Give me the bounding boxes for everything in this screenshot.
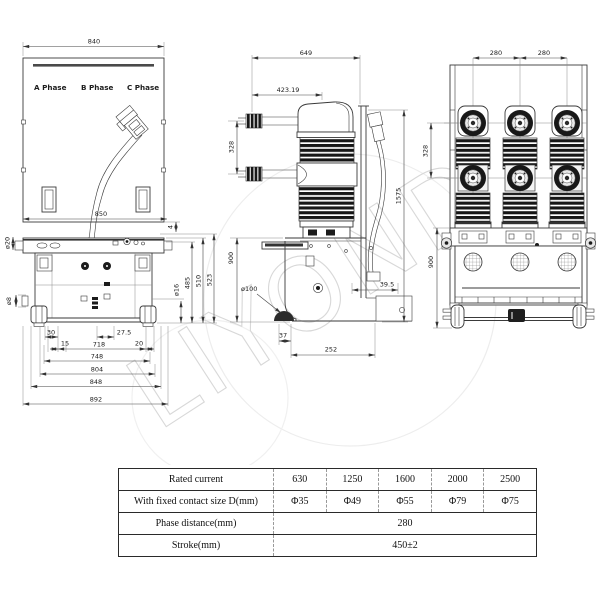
phase-b-label: B Phase xyxy=(81,83,113,92)
spec-row-phase-distance: Phase distance(mm) 280 xyxy=(119,513,537,535)
cell-value: 1250 xyxy=(326,469,379,491)
technical-drawing: LIYOND A Phase B Phase C Phase xyxy=(0,0,600,465)
phase-c-label: C Phase xyxy=(127,83,159,92)
dim-900-side: 900 xyxy=(227,252,235,264)
front-window-right xyxy=(136,187,150,212)
dim-649: 649 xyxy=(300,49,312,57)
front-mechanism-box xyxy=(22,253,156,326)
dim-840: 840 xyxy=(88,38,100,46)
cell-value: Φ35 xyxy=(274,491,327,513)
cell-value: 450±2 xyxy=(274,535,537,557)
spec-row-contact-size: With fixed contact size D(mm) Φ35 Φ49 Φ5… xyxy=(119,491,537,513)
dim-423: 423.19 xyxy=(277,86,300,94)
dim-o16: ø16 xyxy=(173,284,181,296)
cell-value: 2500 xyxy=(484,469,537,491)
cell-value: Φ49 xyxy=(326,491,379,513)
dim-252: 252 xyxy=(325,346,337,354)
cell-value: 280 xyxy=(274,513,537,535)
spec-table: Rated current 630 1250 1600 2000 2500 Wi… xyxy=(118,468,537,557)
drawing-sheet: LIYOND A Phase B Phase C Phase xyxy=(0,0,600,600)
rear-pole-b xyxy=(502,106,538,230)
row-label: With fixed contact size D(mm) xyxy=(119,491,274,513)
dim-485: 485 xyxy=(184,277,192,289)
phase-a-label: A Phase xyxy=(34,83,67,92)
dim-748: 748 xyxy=(91,353,103,361)
dim-27-5: 27.5 xyxy=(117,329,131,337)
rear-pole-a xyxy=(455,106,491,230)
dim-523: 523 xyxy=(206,274,214,286)
dim-510: 510 xyxy=(195,275,203,287)
dim-718: 718 xyxy=(93,341,105,349)
dim-o100: ø100 xyxy=(241,285,257,293)
dim-15: 15 xyxy=(61,340,69,348)
cell-value: Φ79 xyxy=(431,491,484,513)
dim-328-rear: 328 xyxy=(422,145,430,157)
rear-poles xyxy=(455,106,585,230)
dim-37: 37 xyxy=(279,332,287,340)
spec-row-rated-current: Rated current 630 1250 1600 2000 2500 xyxy=(119,469,537,491)
row-label: Stroke(mm) xyxy=(119,535,274,557)
side-terminals xyxy=(238,114,300,181)
rear-base xyxy=(441,228,595,328)
dim-848: 848 xyxy=(90,378,102,386)
row-label: Phase distance(mm) xyxy=(119,513,274,535)
dim-280-a: 280 xyxy=(490,49,502,57)
row-label: Rated current xyxy=(119,469,274,491)
dim-328-side: 328 xyxy=(228,141,236,153)
front-window-left xyxy=(42,187,56,212)
dim-30: 30 xyxy=(47,329,55,337)
dim-4: 4 xyxy=(167,225,175,229)
dim-1575: 1575 xyxy=(395,188,403,205)
dim-39-5: 39.5 xyxy=(380,281,394,289)
dim-892: 892 xyxy=(90,396,102,404)
cell-value: Φ75 xyxy=(484,491,537,513)
dim-20: 20 xyxy=(135,340,143,348)
dim-804: 804 xyxy=(91,366,103,374)
spec-row-stroke: Stroke(mm) 450±2 xyxy=(119,535,537,557)
cell-value: 2000 xyxy=(431,469,484,491)
side-pole xyxy=(297,102,357,238)
cell-value: Φ55 xyxy=(379,491,432,513)
dim-900-rear: 900 xyxy=(427,256,435,268)
rear-pole-c xyxy=(549,106,585,230)
dim-o20: ø20 xyxy=(4,237,12,249)
dim-o8: ø8 xyxy=(5,297,13,305)
cell-value: 1600 xyxy=(379,469,432,491)
dim-850: 850 xyxy=(95,210,107,218)
dim-280-b: 280 xyxy=(538,49,550,57)
front-mechanism-band xyxy=(15,238,172,253)
cell-value: 630 xyxy=(274,469,327,491)
